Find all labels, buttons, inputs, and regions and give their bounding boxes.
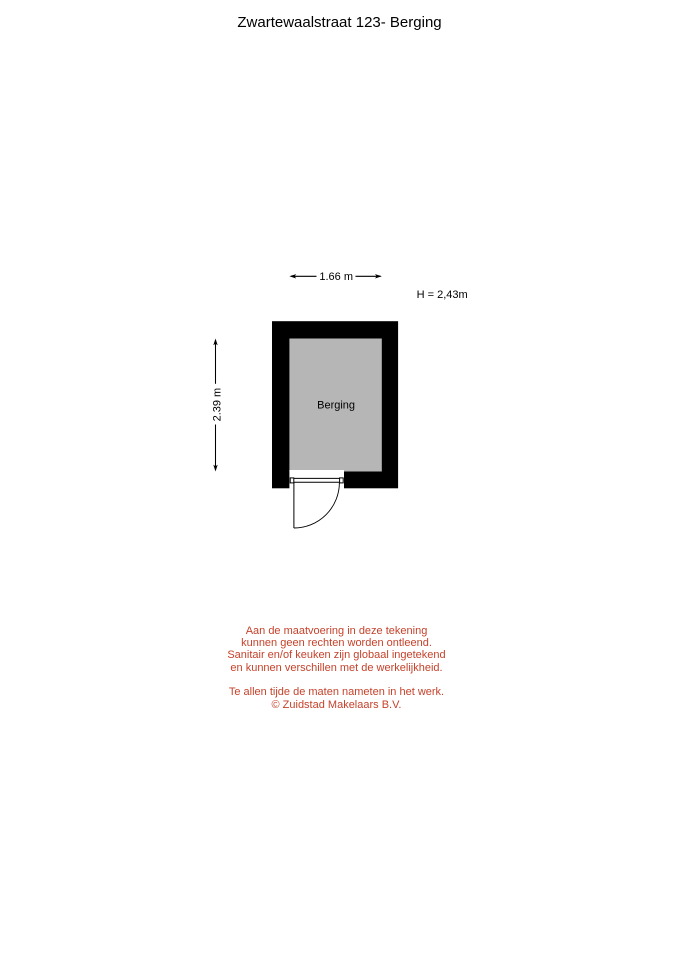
svg-text:1.66 m: 1.66 m — [319, 271, 353, 283]
svg-text:H = 2,43m: H = 2,43m — [417, 289, 468, 301]
svg-text:Berging: Berging — [317, 400, 355, 412]
svg-text:2.39 m: 2.39 m — [211, 388, 223, 422]
